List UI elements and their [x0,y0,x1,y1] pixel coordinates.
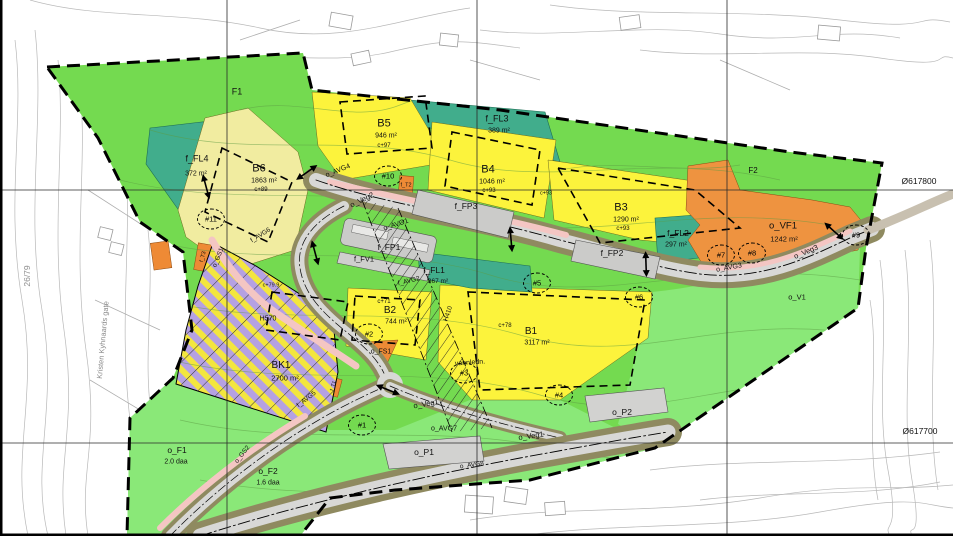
map-frame-left [0,0,3,536]
map-canvas [0,0,953,536]
zoning-plan-map: F1F2f_FL4372 m²B61863 m²c+89B5946 m²c+97… [0,0,953,536]
